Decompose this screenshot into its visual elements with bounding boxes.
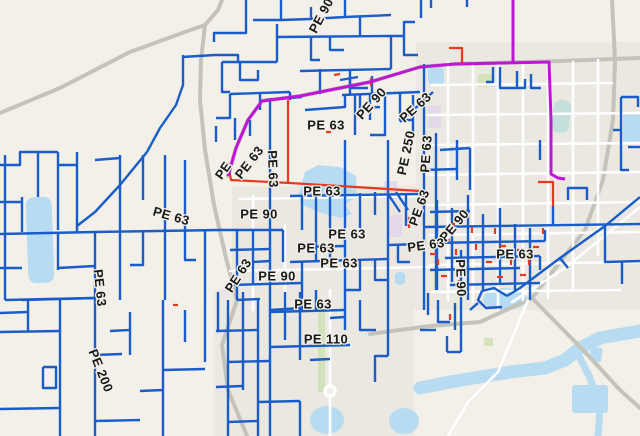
- pipe-line: [163, 369, 205, 370]
- pipe-line: [228, 421, 258, 422]
- pipe-line: [277, 36, 391, 37]
- pipe-line: [258, 401, 300, 402]
- pipe-label: PE 90: [453, 259, 469, 297]
- pipe-line: [216, 386, 243, 387]
- pipe-line: [228, 361, 270, 362]
- pipe-label: PE 63: [320, 255, 357, 270]
- water-area: [310, 406, 344, 434]
- pipe-label: PE 110: [304, 331, 348, 346]
- pipe-label: PE 63: [303, 183, 340, 198]
- pipe-line: [140, 390, 163, 391]
- water-area: [26, 197, 55, 284]
- green-area: [484, 338, 493, 346]
- building-area: [387, 215, 402, 237]
- roundabout-icon: [325, 386, 335, 396]
- red-line: [334, 74, 340, 75]
- water-area: [389, 408, 419, 434]
- pipe-label: PE 63: [265, 150, 281, 188]
- pipe-label: PE 63: [307, 117, 344, 132]
- water-area: [623, 113, 640, 143]
- pipe-line: [237, 299, 260, 300]
- pipe-line: [0, 408, 60, 409]
- pipe-line: [253, 261, 270, 262]
- pipe-label: PE 90: [240, 206, 277, 221]
- pipe-label: PE 63: [496, 246, 533, 261]
- pipe-line: [110, 330, 130, 331]
- pipe-line: [95, 420, 140, 421]
- pipe-label: PE 63: [297, 240, 334, 255]
- pipe-line: [0, 312, 28, 313]
- map-canvas[interactable]: PE 90PE 90PE 63PE 63PE 250PE 63PE 63PEPE…: [0, 0, 640, 436]
- building-area: [428, 106, 441, 128]
- water-area: [428, 66, 444, 86]
- pipe-label: PE 63: [417, 135, 435, 173]
- pipe-line: [216, 330, 258, 331]
- pipe-line: [330, 317, 345, 318]
- pipe-line: [0, 331, 60, 332]
- pipe-label: PE 63: [328, 226, 365, 241]
- pipe-line: [310, 359, 330, 360]
- pipe-network-map: PE 90PE 90PE 63PE 63PE 250PE 63PE 63PEPE…: [0, 0, 640, 436]
- pipe-label: PE 63: [294, 296, 331, 311]
- pipe-label: PE 90: [258, 268, 295, 283]
- water-area: [395, 272, 405, 285]
